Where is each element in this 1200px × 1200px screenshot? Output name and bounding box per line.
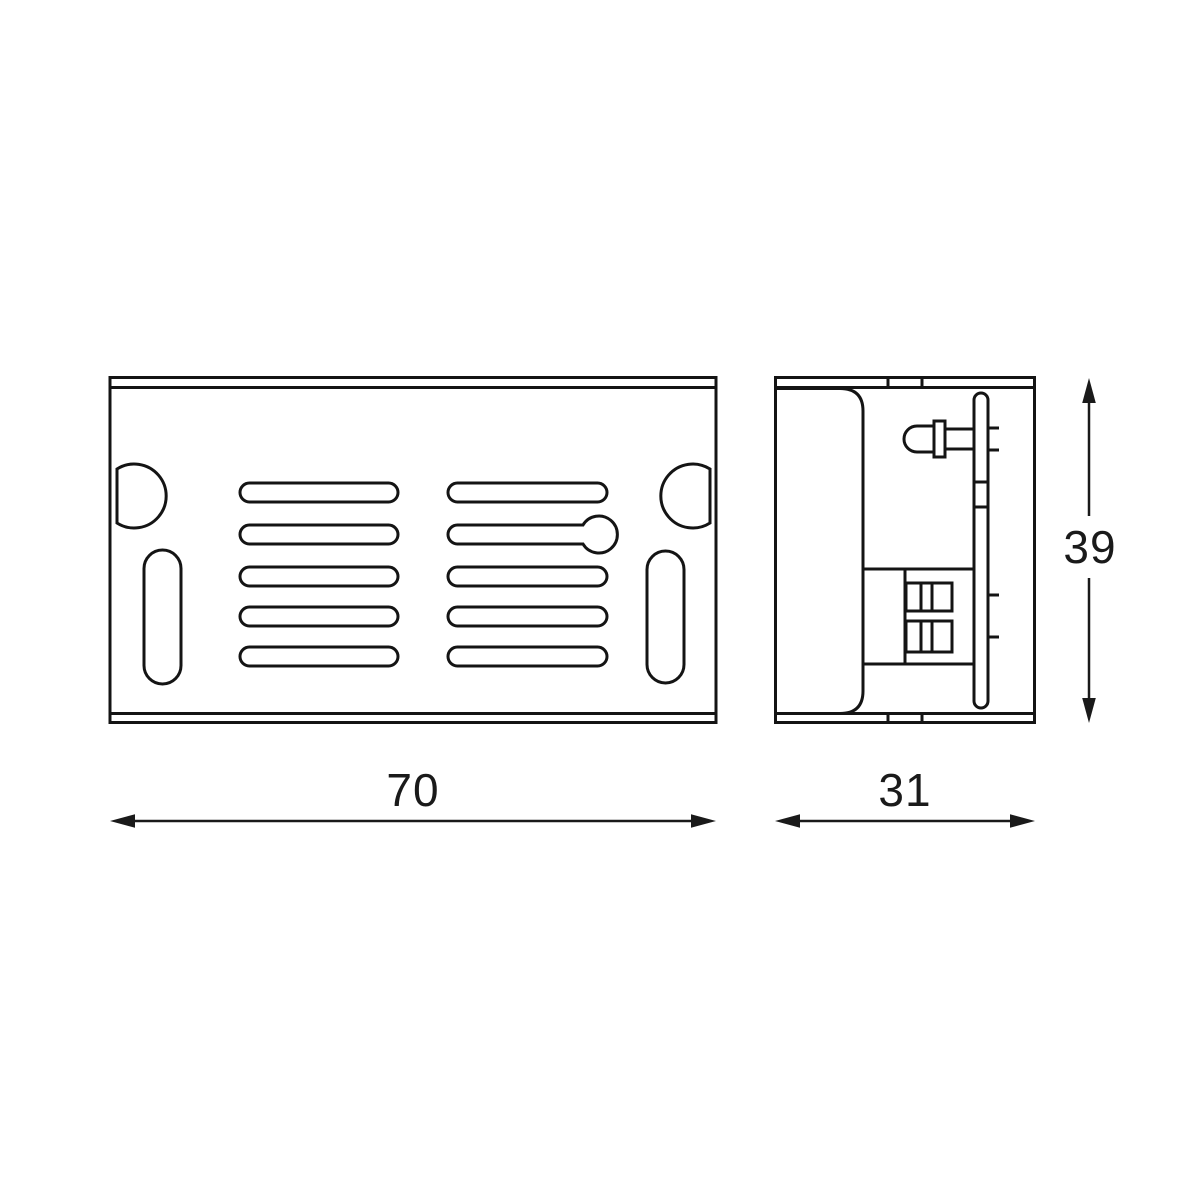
mount-hole-right — [661, 464, 710, 528]
dim-arrowhead-right — [1010, 814, 1035, 828]
led-dome — [904, 426, 934, 452]
vent-slot — [448, 483, 607, 502]
side-view — [776, 378, 1035, 723]
side-slot-right — [647, 551, 684, 683]
vent-slot — [448, 567, 607, 586]
dim-label-side-height: 39 — [1063, 521, 1116, 573]
vent-slot — [448, 647, 607, 666]
dim-front-width: 70 — [110, 764, 716, 828]
dim-label-front-width: 70 — [386, 764, 439, 816]
vent-slot — [240, 525, 398, 544]
dim-arrowhead-left — [775, 814, 800, 828]
side-slot-left — [144, 550, 181, 684]
vent-slot — [240, 567, 398, 586]
vent-slot — [448, 607, 607, 626]
front-view-outline — [110, 378, 716, 723]
dim-arrowhead-up — [1082, 378, 1096, 403]
dim-side-depth: 31 — [775, 764, 1035, 828]
dim-arrowhead-right — [691, 814, 716, 828]
mount-hole-left — [117, 464, 166, 528]
dim-side-height: 39 — [1063, 378, 1116, 723]
vent-slot — [240, 647, 398, 666]
dim-arrowhead-down — [1082, 698, 1096, 723]
front-view — [110, 378, 716, 723]
vent-slot — [240, 483, 398, 502]
vent-slot — [240, 607, 398, 626]
pcb-board — [974, 393, 988, 708]
dim-arrowhead-left — [110, 814, 135, 828]
dim-label-side-depth: 31 — [878, 764, 931, 816]
technical-drawing: 70 31 39 — [0, 0, 1200, 1200]
led-flange — [934, 421, 945, 457]
